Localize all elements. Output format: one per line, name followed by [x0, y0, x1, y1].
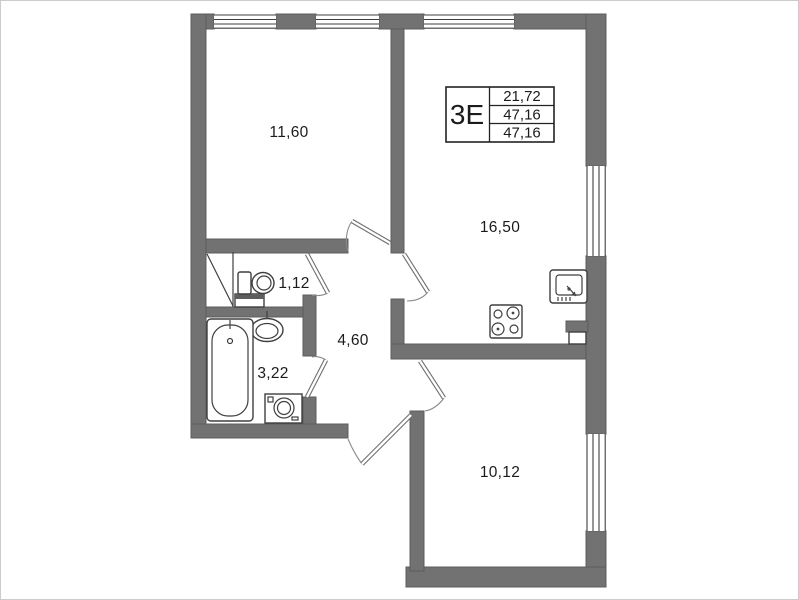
legend-value-overall: 47,16 — [503, 125, 541, 142]
door-entrance — [348, 415, 411, 464]
vent-niche — [566, 321, 588, 344]
kitchen-sink-icon — [550, 270, 587, 303]
washing-machine-icon — [265, 394, 302, 423]
wall-living-kitchen — [391, 29, 404, 253]
legend-value-total: 47,16 — [503, 107, 541, 124]
toilet-icon — [238, 272, 274, 294]
room-label-living-room: 11,60 — [269, 124, 308, 141]
door-bedroom — [420, 361, 444, 411]
door-living-room — [346, 221, 390, 251]
legend-value-living: 21,72 — [503, 88, 541, 105]
door-wc — [307, 254, 328, 296]
window-right-2 — [587, 434, 606, 531]
stove-icon — [490, 305, 522, 338]
wall-bottom — [406, 567, 606, 587]
room-label-hallway: 4,60 — [337, 332, 368, 349]
window-top-1 — [214, 15, 276, 29]
window-top-3 — [424, 15, 514, 29]
room-label-bathroom: 3,22 — [257, 365, 288, 382]
wall-bedroom-left — [410, 411, 424, 571]
window-top-2 — [316, 15, 379, 29]
wall-left — [191, 14, 206, 438]
wall-hall-kitchen — [391, 299, 404, 344]
floor-plan-drawing: 11,60 16,50 1,12 3,22 4,60 10,12 3Е 21,7… — [1, 1, 798, 599]
wall-stub-upper — [303, 295, 316, 356]
room-label-kitchen-living: 16,50 — [480, 219, 520, 236]
floor-plan-canvas: 11,60 16,50 1,12 3,22 4,60 10,12 3Е 21,7… — [0, 0, 799, 600]
legend-table: 3Е 21,72 47,16 47,16 — [446, 87, 554, 142]
wall-top-pier-1 — [276, 14, 316, 29]
wall-right-middle — [586, 256, 606, 434]
door-kitchen — [404, 254, 428, 301]
wall-top-pier-2 — [379, 14, 424, 29]
wall-right-upper — [586, 14, 606, 166]
window-right-1 — [587, 166, 606, 256]
door-bathroom — [307, 357, 326, 397]
wall-living-hall — [206, 239, 348, 253]
wall-bathroom-bottom — [191, 424, 348, 438]
wall-kitchen-bedroom — [391, 344, 586, 359]
legend-apartment-type: 3Е — [450, 99, 484, 130]
room-label-wc: 1,12 — [278, 275, 309, 292]
bathtub-icon — [207, 319, 253, 421]
room-label-bedroom: 10,12 — [480, 464, 520, 481]
wall-wc-bathroom — [206, 307, 303, 317]
wall-stub-lower — [303, 397, 316, 424]
